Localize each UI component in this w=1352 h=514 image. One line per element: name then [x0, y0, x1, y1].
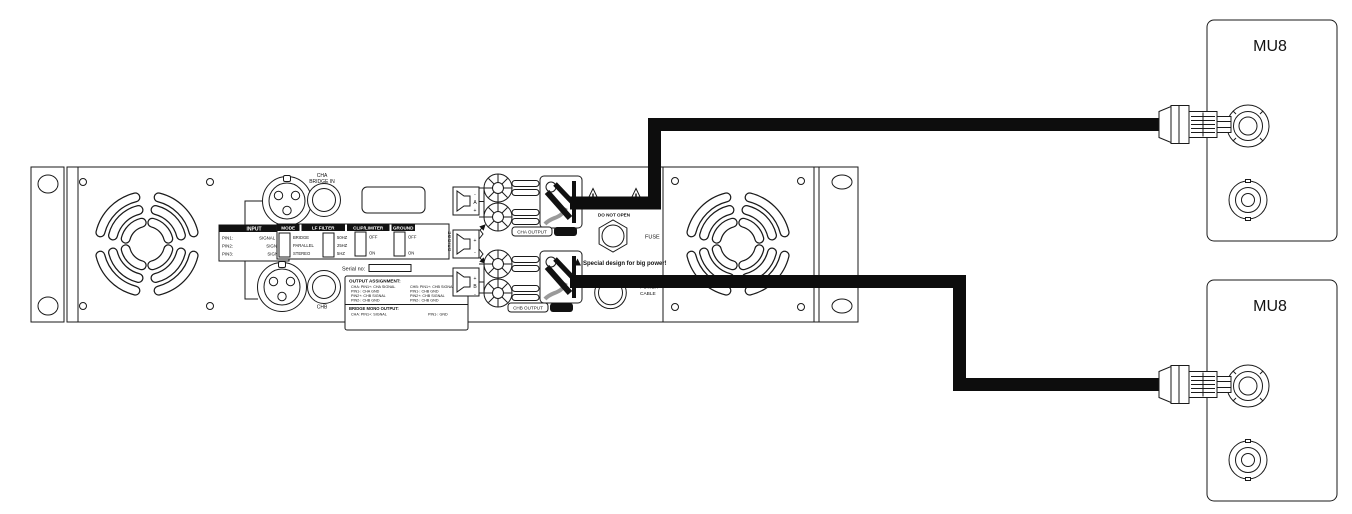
terminal-a-polarity-bottom: + — [474, 208, 477, 214]
input-table-header: INPUT — [247, 226, 262, 232]
ground-option: OFF — [408, 235, 417, 240]
mode-switch[interactable] — [279, 233, 290, 257]
speaker-box-1-title: MU8 — [1253, 38, 1287, 55]
output-assignment-row: PIN1-: CHB GND — [410, 290, 439, 294]
chb-output-badge — [550, 303, 573, 312]
lf-filter-header: LF FILTER — [312, 225, 335, 230]
right-rack-ear — [819, 167, 858, 322]
lf-filter-option: 25HZ — [337, 243, 348, 248]
lf-filter-switch[interactable] — [323, 233, 334, 257]
ground-header: GROUND — [393, 225, 414, 230]
output-assignment-box: OUTPUT ASSIGNMENT: CHA: PIN1+: CHA SIGNA… — [345, 276, 468, 330]
cha-bridge-in-jack — [308, 184, 341, 217]
output-assignment-row: CHA: PIN1+: CHA SIGNAL — [351, 285, 395, 289]
wiring-diagram: CHA BRIDGE IN CHB INPUT PIN1: SIGNAL GND… — [0, 0, 1352, 514]
input-row-pin: PIN1: — [222, 236, 233, 241]
amplifier-rear-panel: CHA BRIDGE IN CHB INPUT PIN1: SIGNAL GND… — [31, 167, 858, 330]
cha-bridge-in-label-2: BRIDGE IN — [309, 179, 335, 185]
input-row-pin: PIN3: — [222, 252, 233, 257]
switch-settings-table: MODE LF FILTER CLIP/LIMITER GROUND BRIDG… — [277, 224, 449, 259]
clip-limiter-option: ON — [369, 251, 375, 256]
output-assignment-row: PIN1-: CHA GND — [351, 290, 380, 294]
bridge-mono-title: BRIDGE MONO OUTPUT: — [349, 306, 399, 311]
bridge-vertical-label: BRIDGE — [447, 231, 452, 251]
bridge-mono-row: CHA: PIN1+: SIGNAL — [351, 313, 387, 317]
cha-speaker-cable — [570, 125, 1160, 204]
lf-filter-option: 5HZ — [337, 251, 345, 256]
output-assignment-row: PIN2+: CHB SIGNAL — [351, 294, 386, 298]
lf-filter-option: 50HZ — [337, 235, 348, 240]
output-assignment-row: PIN2-: CHB GND — [410, 299, 439, 303]
model-plate — [362, 187, 425, 213]
chb-jack — [308, 271, 341, 304]
left-ear-top-hole — [38, 175, 58, 193]
mode-option: STEREO — [293, 251, 311, 256]
chb-output-label: CHB OUTPUT — [513, 306, 543, 311]
right-ear-bottom-hole — [832, 299, 852, 313]
clip-limiter-switch[interactable] — [355, 232, 366, 256]
output-assignment-row: PIN2+: CHB SIGNAL — [410, 294, 445, 298]
mode-option: PARALLEL — [293, 243, 315, 248]
clip-limiter-header: CLIP/LIMITER — [353, 225, 384, 230]
terminal-bridge-polarity-top: + — [474, 238, 477, 244]
cha-output-label: CHA OUTPUT — [517, 230, 547, 235]
bridge-mono-row: PIN1-: GND — [428, 313, 448, 317]
big-power-note: Special design for big power! — [583, 261, 667, 267]
do-not-open-label: DO NOT OPEN — [598, 213, 631, 218]
clip-limiter-option: OFF — [369, 235, 378, 240]
serial-no-label: Serial no: — [342, 267, 366, 273]
power-cable-label-2: CABLE — [640, 291, 656, 297]
ground-option: ON — [408, 251, 414, 256]
fuse-cap — [602, 225, 624, 247]
left-ear-bottom-hole — [38, 297, 58, 315]
fuse-label: FUSE — [645, 235, 660, 241]
input-row-pin: PIN2: — [222, 244, 233, 249]
mode-option: BRIDGE — [293, 235, 309, 240]
ground-switch[interactable] — [394, 232, 405, 256]
cha-output-badge — [554, 227, 577, 236]
output-assignment-title: OUTPUT ASSIGNMENT: — [349, 279, 401, 284]
diagram-canvas: CHA BRIDGE IN CHB INPUT PIN1: SIGNAL GND… — [0, 0, 1352, 514]
mode-header: MODE — [281, 225, 295, 230]
speaker-wiring-legend: BRIDGE - A + + - + B - — [447, 187, 485, 298]
serial-no-field — [369, 265, 411, 272]
chb-xlr-input — [258, 262, 307, 312]
right-ear-top-hole — [832, 175, 852, 189]
terminal-b-polarity-top: + — [474, 276, 477, 282]
cha-xlr-input — [263, 176, 312, 226]
output-assignment-row: CHB: PIN1+: CHB SIGNAL — [410, 285, 455, 289]
chb-label: CHB — [317, 305, 328, 311]
output-assignment-row: PIN2-: CHB GND — [351, 299, 380, 303]
speaker-box-2-title: MU8 — [1253, 298, 1287, 315]
